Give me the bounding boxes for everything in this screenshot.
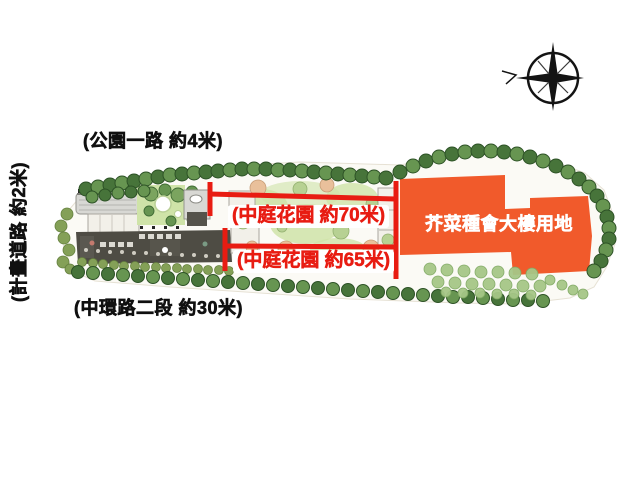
orange-parcel-label: 芥菜種會大樓用地: [424, 215, 574, 235]
park-road-label: (公園一路 約4米): [83, 132, 223, 152]
site-plan-drawing: [0, 0, 640, 480]
central-road-label: (中環路二段 約30米): [74, 299, 243, 319]
planned-road-label: (計畫道路 約2米): [10, 152, 36, 312]
compass-rose-icon: [502, 42, 584, 111]
fountain: [155, 196, 171, 212]
site-plan-figure: (公園一路 約4米) (計畫道路 約2米) (中環路二段 約30米) (中庭花園…: [0, 0, 640, 480]
courtyard-70m-label: (中庭花園 約70米): [228, 205, 389, 228]
courtyard-65m-label: (中庭花園 約65米): [233, 250, 394, 273]
